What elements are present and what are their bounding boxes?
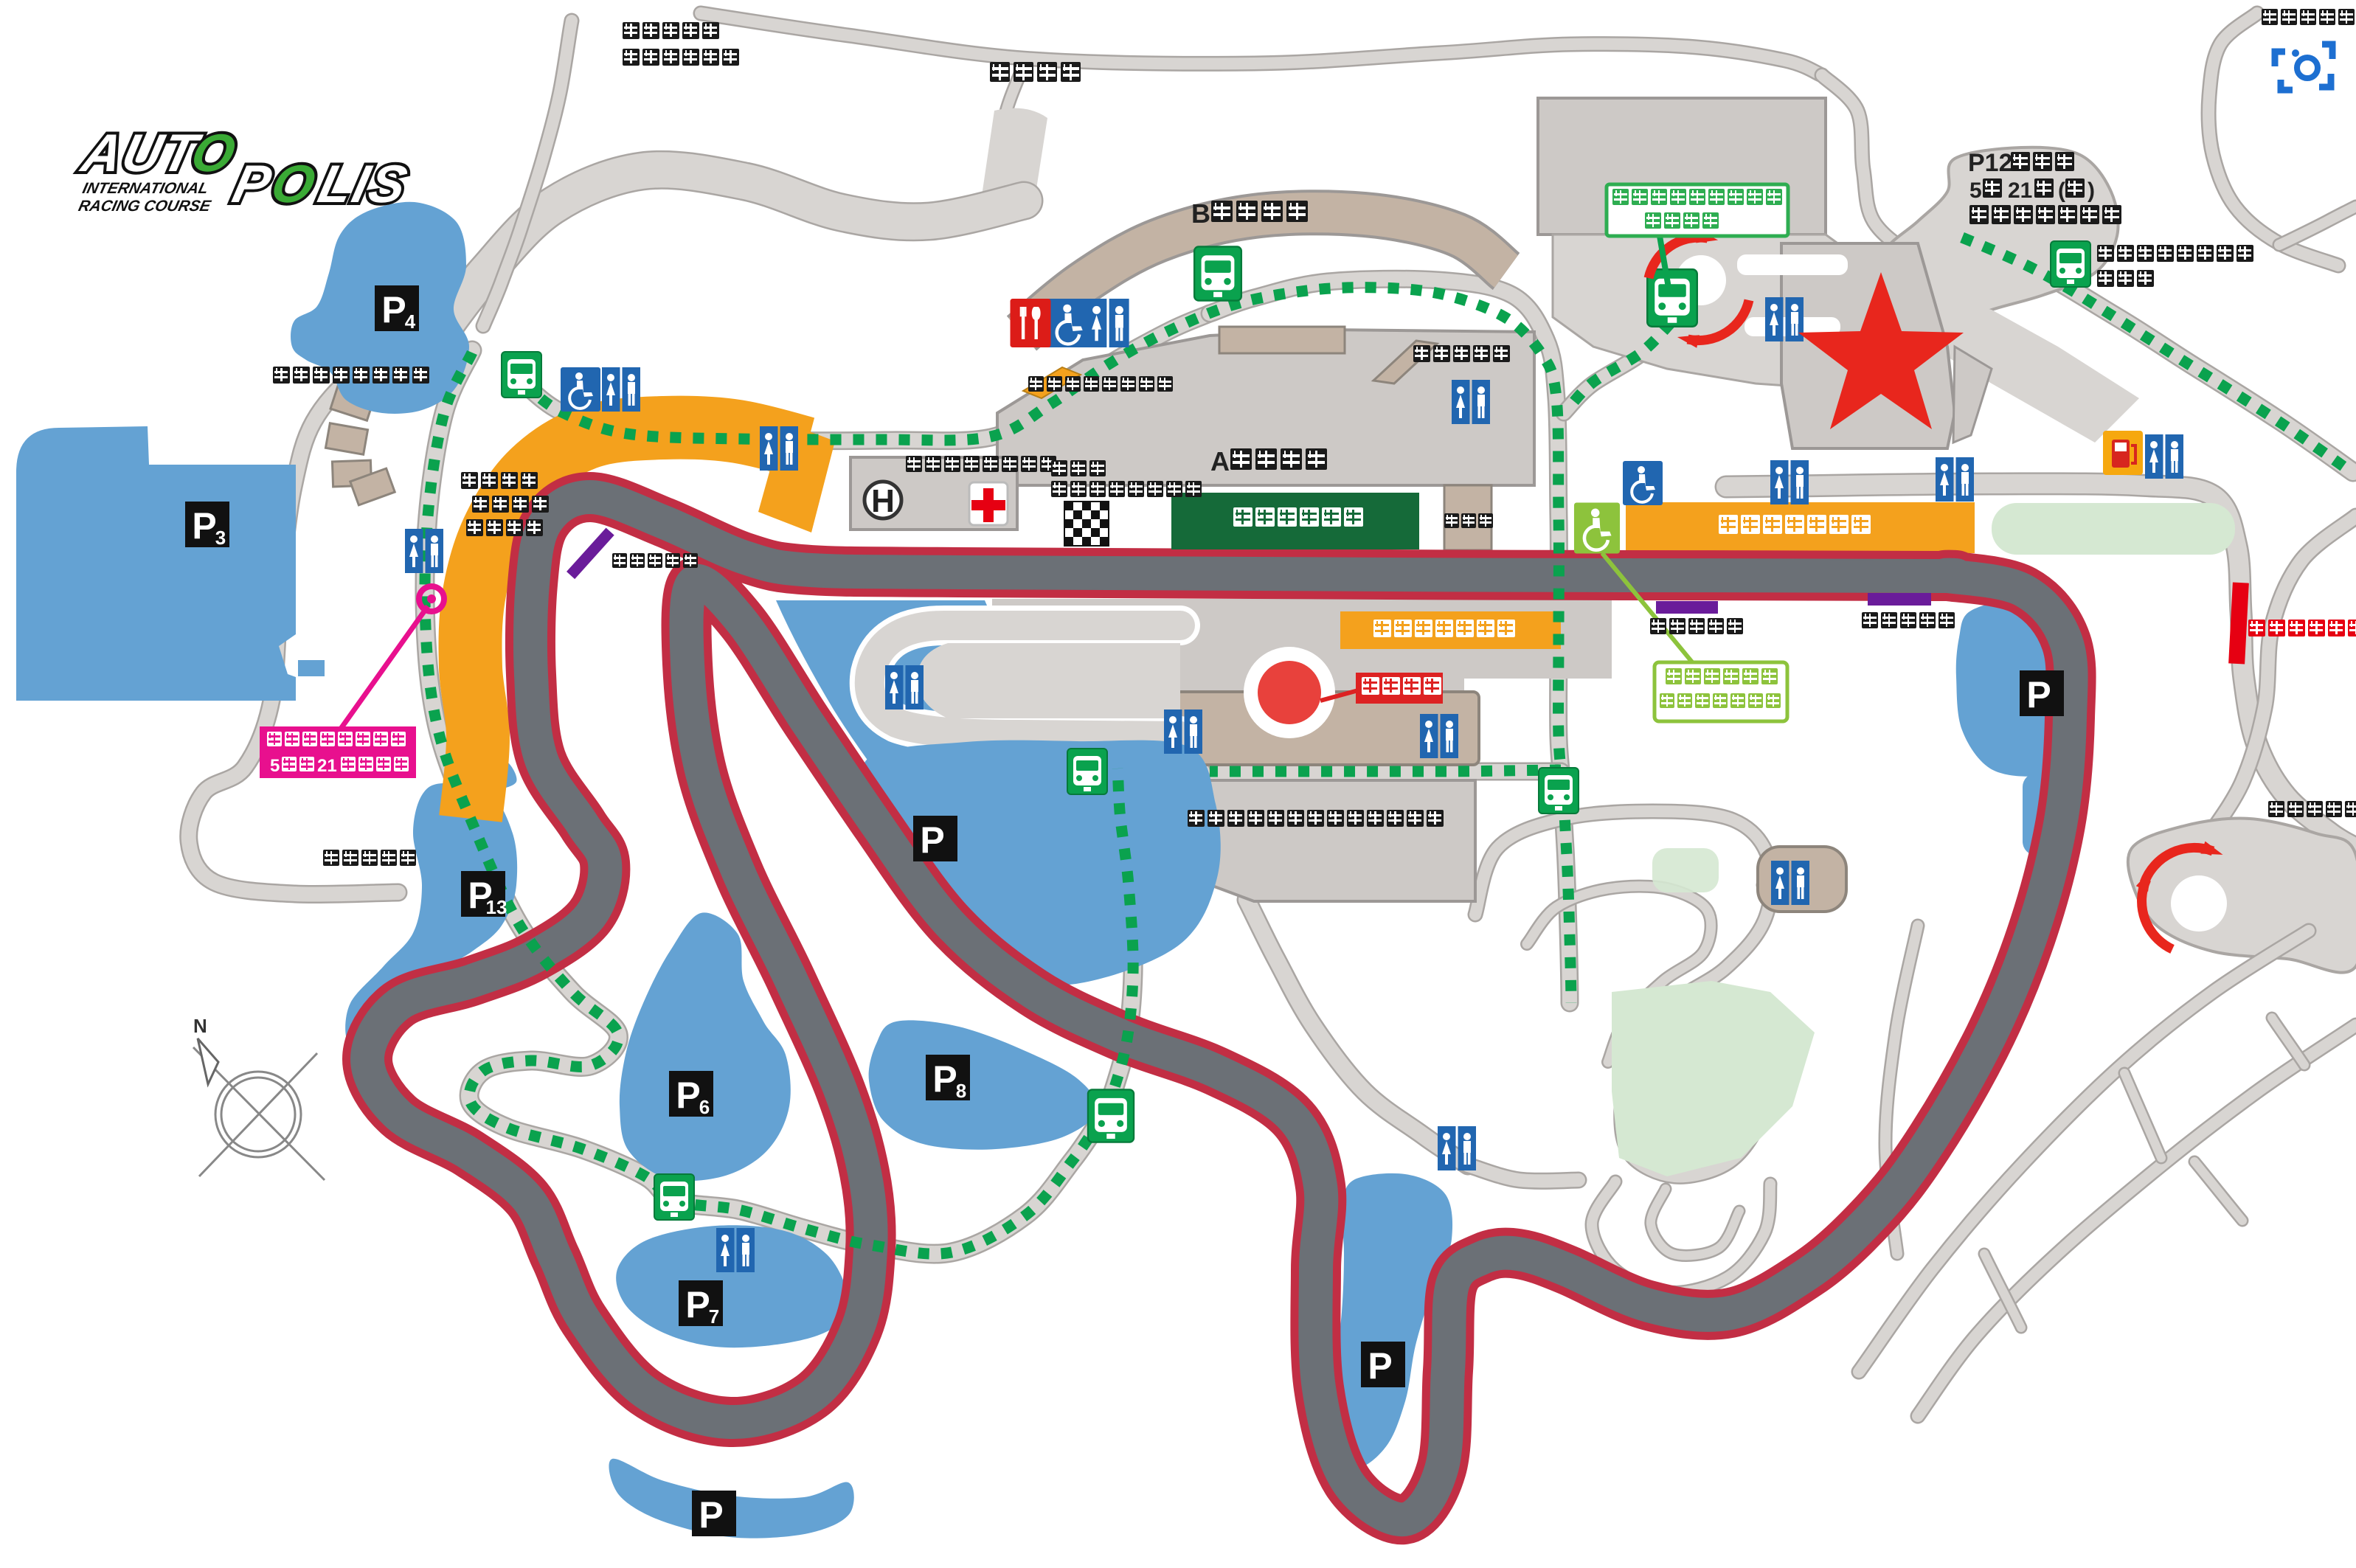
svg-text:P12: P12 xyxy=(1968,149,2013,177)
svg-text:4: 4 xyxy=(405,311,416,333)
svg-text:8: 8 xyxy=(956,1080,966,1102)
svg-text:AUT: AUT xyxy=(75,124,207,183)
svg-text:7: 7 xyxy=(709,1305,719,1328)
svg-text:P: P xyxy=(1368,1345,1392,1387)
svg-text:P: P xyxy=(920,819,944,861)
svg-text:INTERNATIONAL: INTERNATIONAL xyxy=(81,179,210,197)
svg-text:5: 5 xyxy=(270,756,280,776)
svg-text:P: P xyxy=(2026,674,2051,715)
svg-text:13: 13 xyxy=(486,896,507,918)
svg-text:P: P xyxy=(676,1075,700,1116)
svg-text:): ) xyxy=(2088,178,2095,203)
svg-text:B: B xyxy=(1191,198,1210,229)
svg-text:LIS: LIS xyxy=(313,155,413,214)
svg-text:P: P xyxy=(192,505,216,547)
svg-text:P: P xyxy=(381,289,406,330)
svg-text:H: H xyxy=(871,483,895,519)
svg-text:RACING COURSE: RACING COURSE xyxy=(77,197,213,215)
svg-text:P: P xyxy=(932,1058,957,1100)
svg-text:P: P xyxy=(699,1494,723,1536)
svg-text:P: P xyxy=(685,1284,710,1325)
svg-text:N: N xyxy=(193,1015,207,1037)
svg-text:5: 5 xyxy=(1969,178,1982,203)
svg-text:3: 3 xyxy=(215,527,226,549)
svg-text:(: ( xyxy=(2058,178,2065,203)
svg-text:A: A xyxy=(1210,446,1230,476)
svg-text:21: 21 xyxy=(317,756,337,776)
svg-text:21: 21 xyxy=(2008,178,2032,203)
svg-text:6: 6 xyxy=(699,1096,710,1118)
